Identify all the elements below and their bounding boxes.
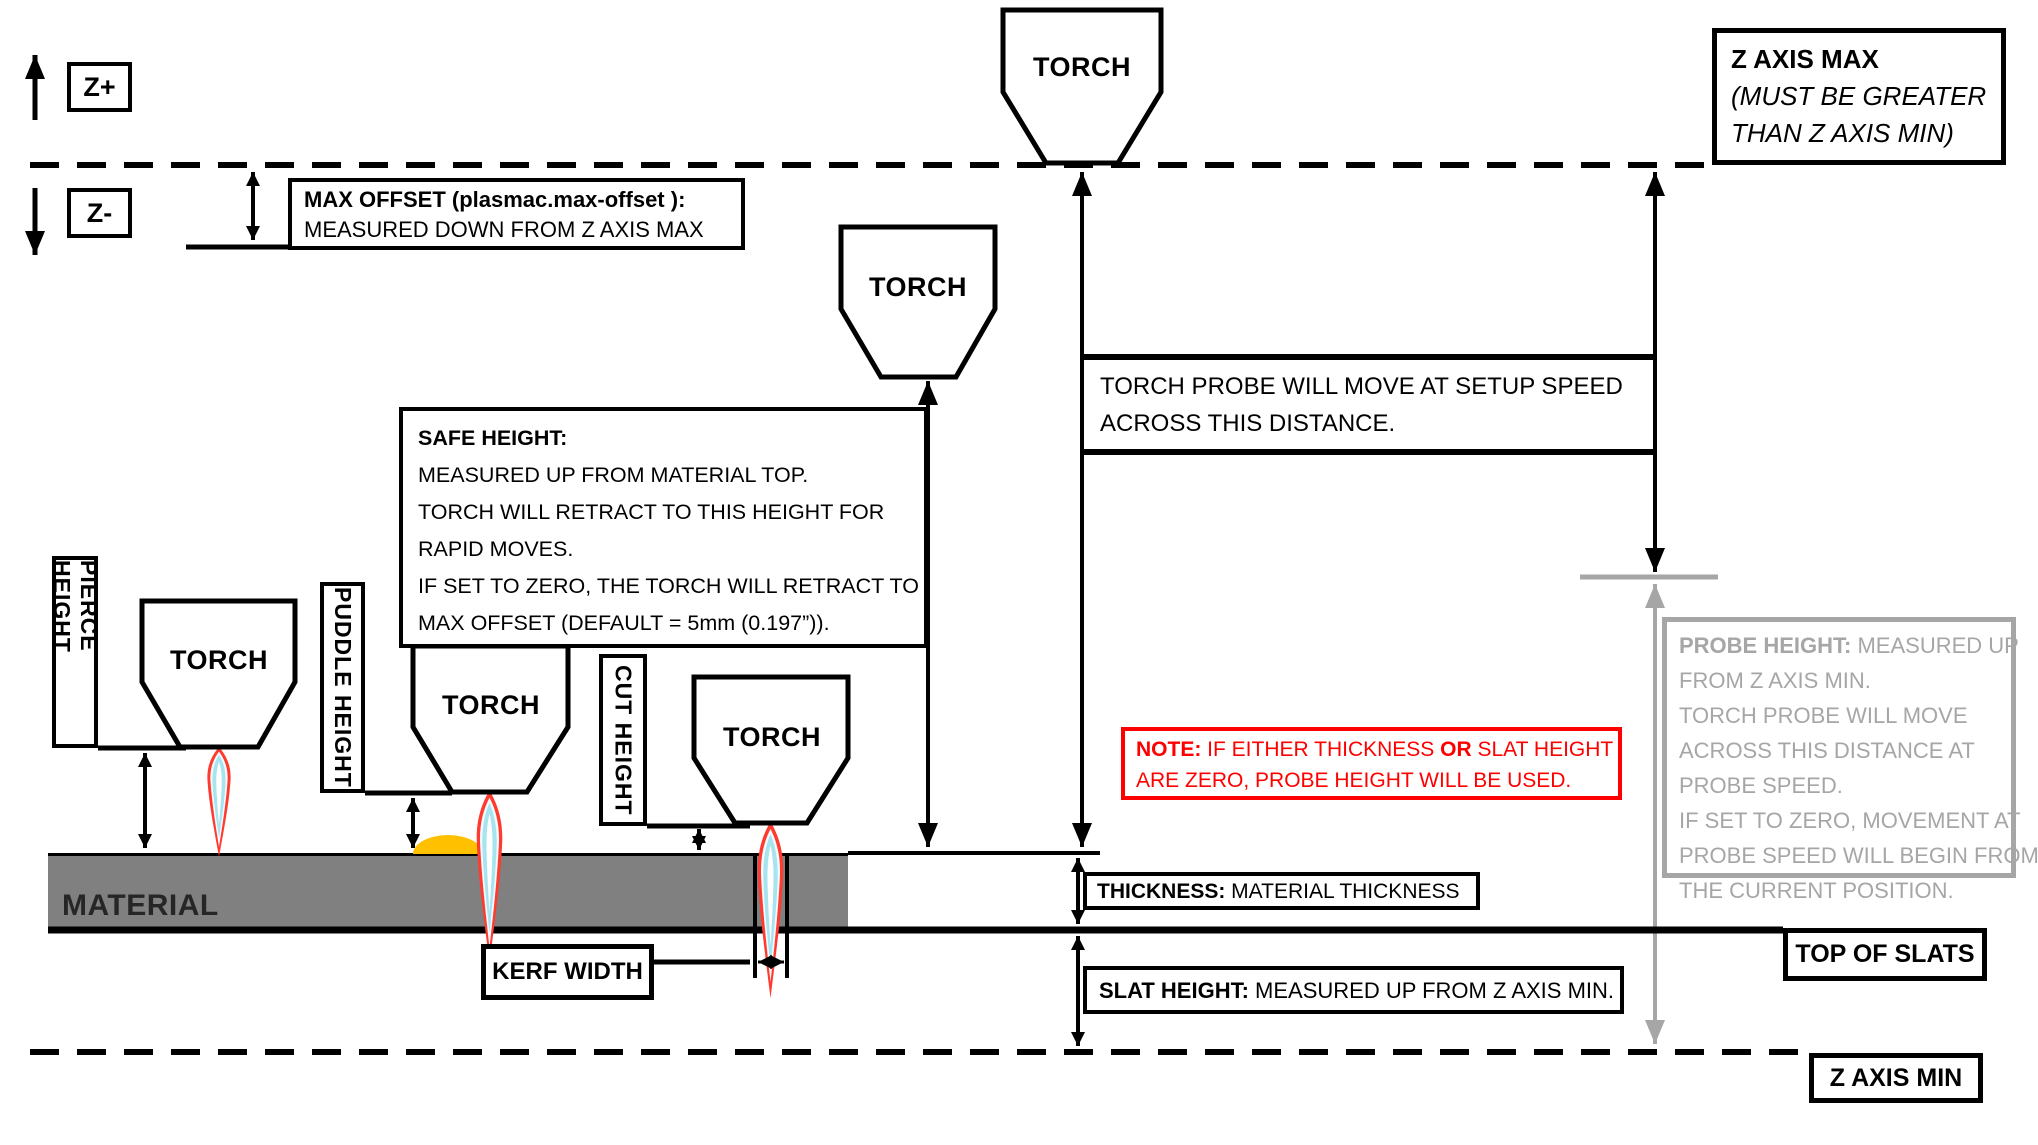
z-plus-box: Z+ [67, 62, 132, 112]
z-axis-max-title: Z AXIS MAX [1731, 41, 1987, 78]
material-label: MATERIAL [62, 889, 219, 923]
puddle-height-text: PUDDLE HEIGHT [329, 587, 356, 788]
note-text1: IF EITHER THICKNESS [1201, 738, 1440, 761]
torch-probe-text: TORCH PROBE WILL MOVE AT SETUP SPEED ACR… [1100, 368, 1623, 442]
probe-height-line6: IF SET TO ZERO, MOVEMENT AT [1679, 803, 1999, 838]
top-of-slats-box: TOP OF SLATS [1783, 928, 1987, 981]
slat-height-box: SLAT HEIGHT: MEASURED UP FROM Z AXIS MIN… [1083, 966, 1624, 1014]
plasmac-height-diagram: MATERIAL [0, 0, 2038, 1145]
pierce-height-label: PIERCE HEIGHT [52, 556, 98, 748]
top-of-slats-text: TOP OF SLATS [1795, 940, 1974, 969]
note-line1: NOTE: IF EITHER THICKNESS OR SLAT HEIGHT [1136, 734, 1607, 765]
diagram-lines-layer [0, 0, 2038, 1145]
z-axis-max-line2: (MUST BE GREATER [1731, 78, 1987, 115]
thickness-box: THICKNESS: MATERIAL THICKNESS [1083, 872, 1480, 910]
probe-height-title-rest: MEASURED UP [1851, 633, 2018, 658]
safe-height-line3: RAPID MOVES. [418, 531, 909, 568]
kerf-width-box: KERF WIDTH [481, 944, 654, 1000]
torch-pierce-label: TORCH [142, 645, 296, 676]
cut-height-text: CUT HEIGHT [610, 665, 637, 816]
torch-probe-line1: TORCH PROBE WILL MOVE AT SETUP SPEED [1100, 368, 1623, 405]
note-bold-or: OR [1440, 738, 1472, 761]
probe-height-line3: TORCH PROBE WILL MOVE [1679, 698, 1999, 733]
z-plus-label: Z+ [83, 72, 115, 103]
z-axis-min-text: Z AXIS MIN [1830, 1064, 1962, 1093]
note-line2: ARE ZERO, PROBE HEIGHT WILL BE USED. [1136, 765, 1607, 796]
pierce-flame [207, 747, 230, 857]
kerf-width-text: KERF WIDTH [492, 958, 643, 986]
note-box: NOTE: IF EITHER THICKNESS OR SLAT HEIGHT… [1121, 727, 1622, 800]
thickness-title: THICKNESS: [1097, 880, 1225, 903]
thickness-text: MATERIAL THICKNESS [1225, 880, 1459, 903]
probe-height-box: PROBE HEIGHT: MEASURED UP FROM Z AXIS MI… [1662, 617, 2016, 878]
safe-height-line4: IF SET TO ZERO, THE TORCH WILL RETRACT T… [418, 568, 909, 605]
z-minus-box: Z- [67, 188, 132, 238]
probe-height-line1: PROBE HEIGHT: MEASURED UP [1679, 628, 1999, 663]
safe-height-line2: TORCH WILL RETRACT TO THIS HEIGHT FOR [418, 494, 909, 531]
safe-height-title: SAFE HEIGHT: [418, 420, 909, 457]
safe-height-line5: MAX OFFSET (DEFAULT = 5mm (0.197”)). [418, 605, 909, 642]
slat-height-title: SLAT HEIGHT: [1099, 978, 1249, 1003]
probe-height-title: PROBE HEIGHT: [1679, 633, 1851, 658]
probe-height-line8: THE CURRENT POSITION. [1679, 873, 1999, 908]
z-axis-min-box: Z AXIS MIN [1809, 1053, 1983, 1103]
pierce-height-text: PIERCE HEIGHT [48, 560, 102, 744]
z-minus-label: Z- [87, 198, 112, 229]
note-bold-prefix: NOTE: [1136, 738, 1201, 761]
puddle-shape [413, 835, 483, 854]
torch-puddle-label: TORCH [414, 690, 568, 721]
probe-height-line5: PROBE SPEED. [1679, 768, 1999, 803]
torch-top-label: TORCH [1005, 52, 1159, 83]
z-axis-max-box: Z AXIS MAX (MUST BE GREATER THAN Z AXIS … [1712, 28, 2006, 165]
torch-cut-label: TORCH [695, 722, 849, 753]
slat-height-text: MEASURED UP FROM Z AXIS MIN. [1249, 978, 1614, 1003]
torch-top-shape [1003, 10, 1161, 163]
max-offset-box: MAX OFFSET (plasmac.max-offset ): MEASUR… [288, 178, 745, 250]
cut-height-label: CUT HEIGHT [599, 654, 647, 826]
max-offset-line2: MEASURED DOWN FROM Z AXIS MAX [304, 215, 729, 245]
note-text2: SLAT HEIGHT [1472, 738, 1614, 761]
torch-safe-label: TORCH [841, 272, 995, 303]
probe-height-line2: FROM Z AXIS MIN. [1679, 663, 1999, 698]
puddle-height-label: PUDDLE HEIGHT [320, 582, 365, 793]
material-slab: MATERIAL [48, 853, 848, 933]
probe-height-line4: ACROSS THIS DISTANCE AT [1679, 733, 1999, 768]
safe-height-line1: MEASURED UP FROM MATERIAL TOP. [418, 457, 909, 494]
z-axis-max-line3: THAN Z AXIS MIN) [1731, 115, 1987, 152]
torch-probe-line2: ACROSS THIS DISTANCE. [1100, 405, 1623, 442]
max-offset-title: MAX OFFSET (plasmac.max-offset ): [304, 185, 729, 215]
probe-height-line7: PROBE SPEED WILL BEGIN FROM [1679, 838, 1999, 873]
safe-height-box: SAFE HEIGHT: MEASURED UP FROM MATERIAL T… [399, 407, 928, 648]
